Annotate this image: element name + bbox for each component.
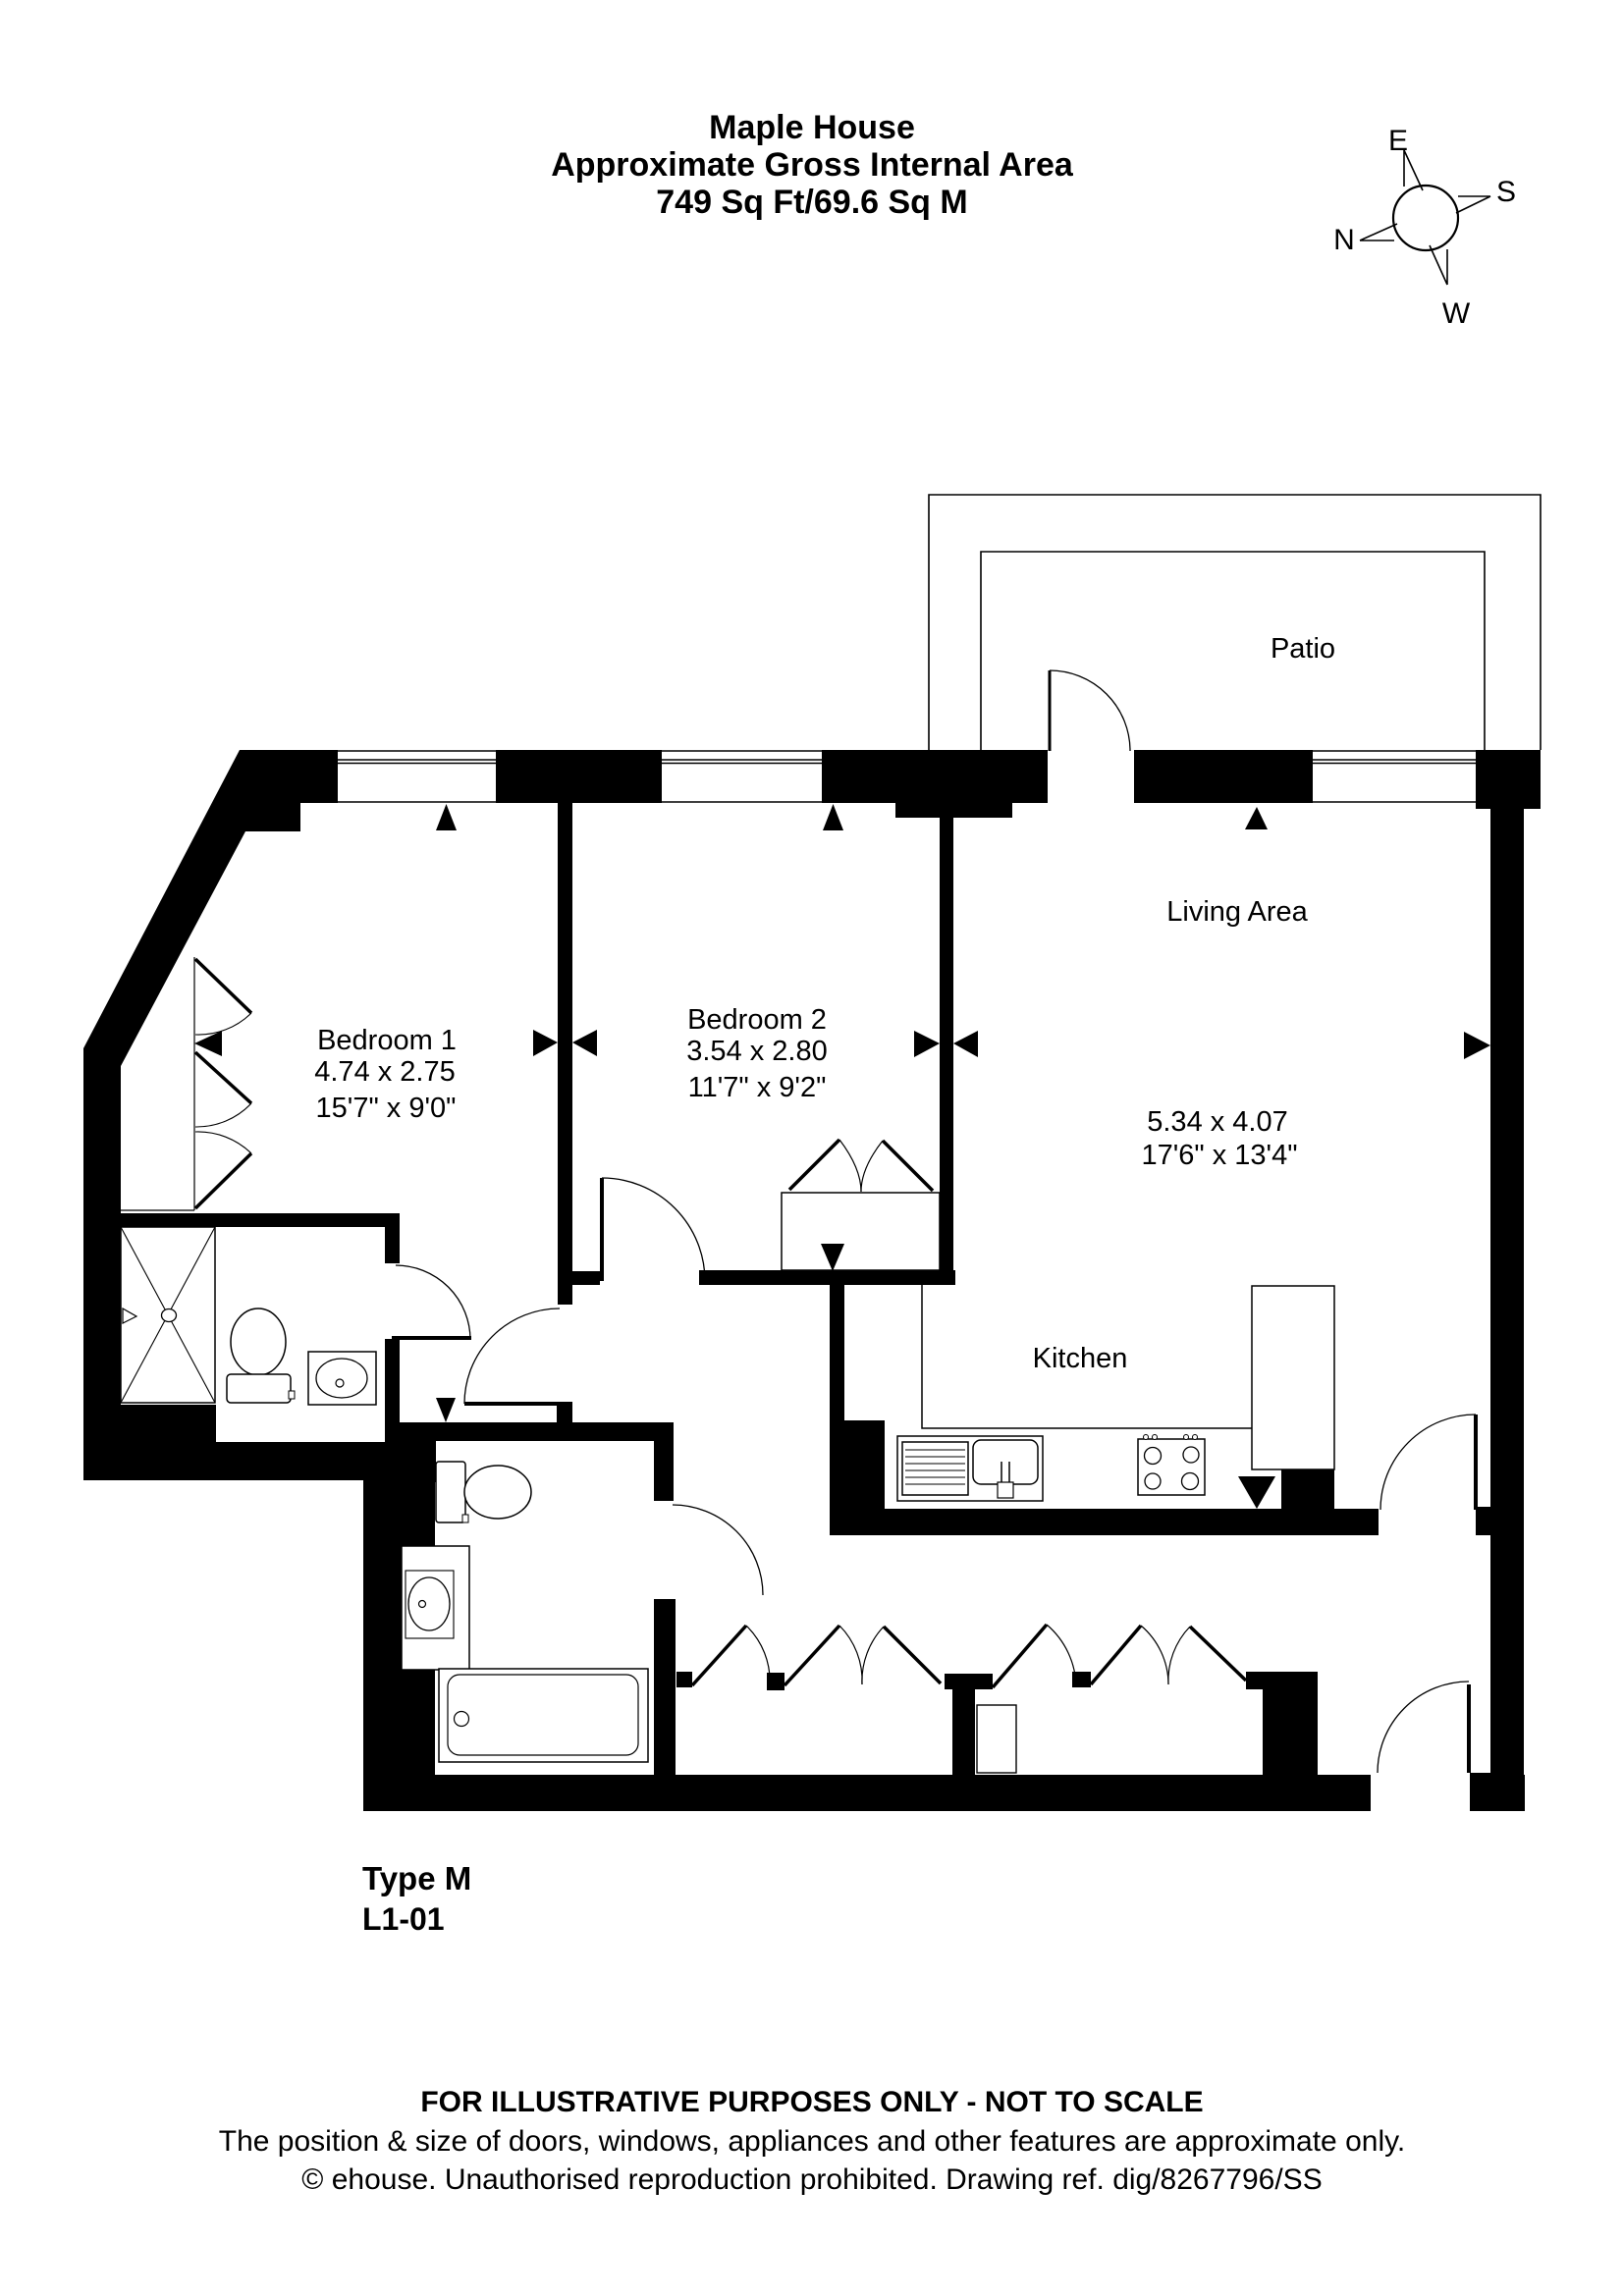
svg-text:17'6" x 13'4": 17'6" x 13'4": [1141, 1140, 1297, 1171]
svg-text:Bedroom 2: Bedroom 2: [687, 1004, 827, 1036]
svg-text:749 Sq Ft/69.6 Sq M: 749 Sq Ft/69.6 Sq M: [656, 184, 967, 221]
svg-text:15'7" x 9'0": 15'7" x 9'0": [316, 1093, 457, 1124]
svg-text:W: W: [1442, 297, 1471, 330]
svg-text:L1-01: L1-01: [362, 1901, 445, 1937]
svg-text:Patio: Patio: [1271, 633, 1335, 665]
svg-text:Kitchen: Kitchen: [1033, 1343, 1128, 1374]
svg-text:S: S: [1496, 176, 1516, 208]
svg-text:Type M: Type M: [362, 1860, 471, 1896]
svg-text:© ehouse. Unauthorised reprodu: © ehouse. Unauthorised reproduction proh…: [301, 2163, 1322, 2196]
svg-text:The position & size of doors,: The position & size of doors, windows, a…: [219, 2125, 1405, 2158]
svg-text:Living Area: Living Area: [1166, 896, 1308, 928]
svg-text:5.34 x 4.07: 5.34 x 4.07: [1147, 1106, 1288, 1138]
svg-text:Approximate Gross Internal Are: Approximate Gross Internal Area: [551, 146, 1074, 184]
svg-text:11'7" x 9'2": 11'7" x 9'2": [688, 1072, 827, 1103]
svg-text:FOR ILLUSTRATIVE PURPOSES ONLY: FOR ILLUSTRATIVE PURPOSES ONLY - NOT TO …: [420, 2086, 1203, 2118]
svg-text:3.54 x 2.80: 3.54 x 2.80: [686, 1036, 828, 1067]
svg-text:Bedroom 1: Bedroom 1: [317, 1025, 457, 1056]
svg-text:E: E: [1388, 125, 1408, 157]
svg-text:4.74 x 2.75: 4.74 x 2.75: [314, 1056, 456, 1088]
svg-text:Maple House: Maple House: [709, 109, 915, 146]
svg-text:N: N: [1333, 224, 1355, 256]
